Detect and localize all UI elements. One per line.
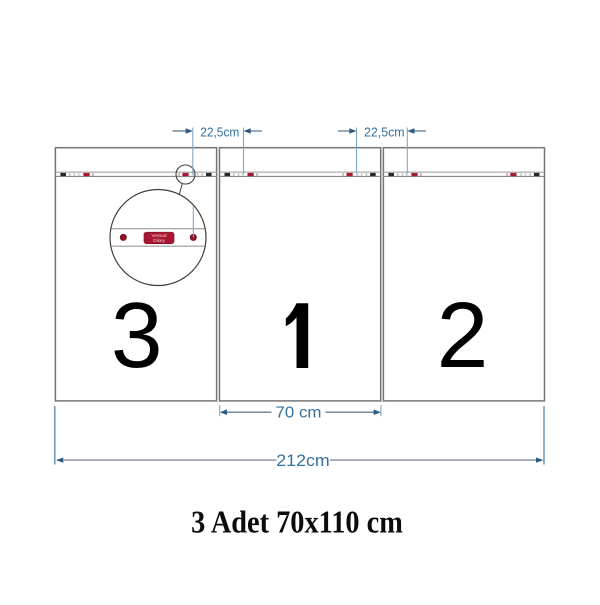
svg-text:Dikey: Dikey bbox=[153, 238, 165, 243]
svg-text:212cm: 212cm bbox=[276, 452, 330, 470]
svg-text:22,5cm: 22,5cm bbox=[364, 125, 405, 140]
svg-text:2: 2 bbox=[437, 283, 489, 387]
svg-text:3 Adet 70x110 cm: 3 Adet 70x110 cm bbox=[191, 505, 403, 540]
svg-text:3: 3 bbox=[111, 283, 163, 387]
svg-text:70 cm: 70 cm bbox=[276, 405, 322, 422]
svg-text:22,5cm: 22,5cm bbox=[200, 125, 239, 140]
